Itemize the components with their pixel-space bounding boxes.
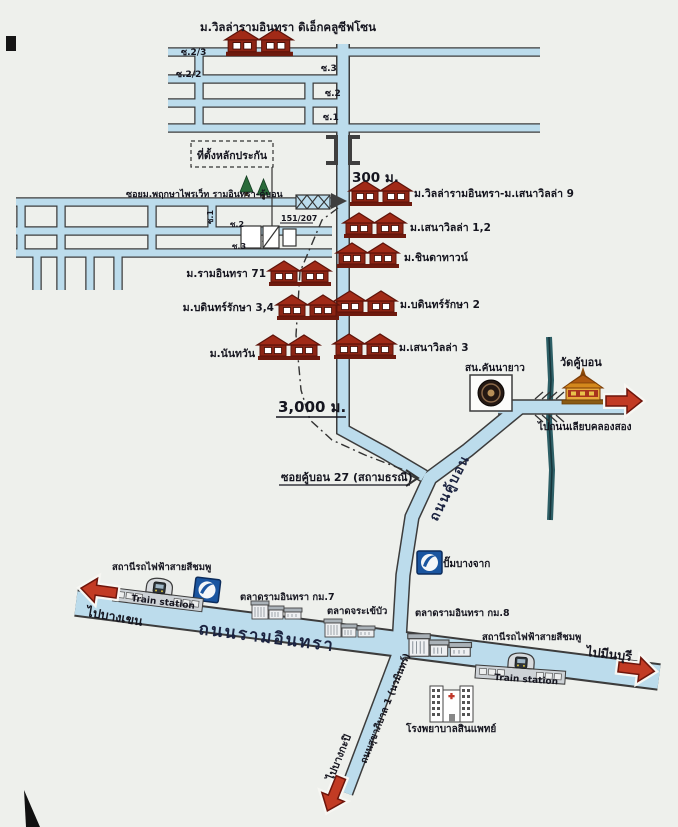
road-crossing-icon — [296, 195, 330, 209]
village-label: ม.รามอินทรา 71 — [186, 268, 266, 280]
house-number-label: 151/207 — [281, 214, 317, 223]
scanned-map-page: ม.วิลล่ารามอินทรา ดิเอ็กคลูซีฟโซน ซ.2/3 … — [0, 0, 678, 827]
village-label: ม.ชินดาทาวน์ — [404, 251, 469, 264]
police-station-label: สน.คันนายาว — [465, 362, 525, 374]
collateral-box-label: ที่ตั้งหลักประกัน — [197, 147, 268, 162]
village-label: ม.นันทวัน — [210, 348, 256, 360]
police-station-icon — [470, 375, 512, 411]
soi-label: ซ.1 — [206, 210, 215, 224]
hospital-label: โรงพยาบาลสินแพทย์ — [405, 722, 496, 735]
soi-label: ซ.2/2 — [176, 70, 201, 80]
collateral-buildings — [241, 226, 296, 248]
gas-station-label: ปั๊มบางจาก — [443, 556, 490, 570]
soi-khubon27-label: ซอยคู้บอน 27 (สถามธรณี) — [281, 471, 413, 485]
pink-line-station-label: สถานีรถไฟฟ้าสายสีชมพู — [482, 631, 581, 644]
village-label: ม.วิลล่ารามอินทรา-ม.เสนาวิลล่า 9 — [414, 188, 574, 200]
village-label: ม.เสนาวิลล่า 1,2 — [410, 222, 491, 234]
soi-label: ซ.1 — [323, 113, 339, 123]
soi-label: ซ.2 — [325, 89, 341, 99]
to-khlong-label: ไปถนนเลียบคลองสอง — [537, 420, 632, 433]
village-label: ม.บดินทร์รักษา 3,4 — [183, 301, 274, 314]
market-km7-label: ตลาดรามอินทรา กม.7 — [240, 592, 335, 603]
map-canvas: ม.วิลล่ารามอินทรา ดิเอ็กคลูซีฟโซน ซ.2/3 … — [0, 0, 678, 827]
soi-label: ซ.2 — [230, 220, 244, 229]
distance-3000m-label: 3,000 ม. — [278, 398, 346, 416]
distance-300m-label: 300 ม. — [352, 170, 399, 186]
soi-label: ซ.3 — [232, 242, 246, 251]
temple-label: วัดคู้บอน — [560, 356, 602, 370]
top-village-label: ม.วิลล่ารามอินทรา ดิเอ็กคลูซีฟโซน — [200, 19, 376, 35]
gas-station-icon — [417, 551, 442, 574]
pink-line-station-label: สถานีรถไฟฟ้าสายสีชมพู — [112, 561, 211, 574]
hospital-icon — [430, 686, 473, 722]
village-label: ม.เสนาวิลล่า 3 — [399, 342, 469, 354]
village-label: ม.บดินทร์รักษา 2 — [400, 298, 480, 311]
market-chorakhebua-label: ตลาดจระเข้บัว — [327, 605, 387, 617]
soi-label: ซ.3 — [321, 64, 337, 74]
scan-artifact — [6, 36, 16, 51]
market-km8-label: ตลาดรามอินทรา กม.8 — [415, 608, 510, 619]
soi-label: ซ.2/3 — [181, 48, 206, 58]
